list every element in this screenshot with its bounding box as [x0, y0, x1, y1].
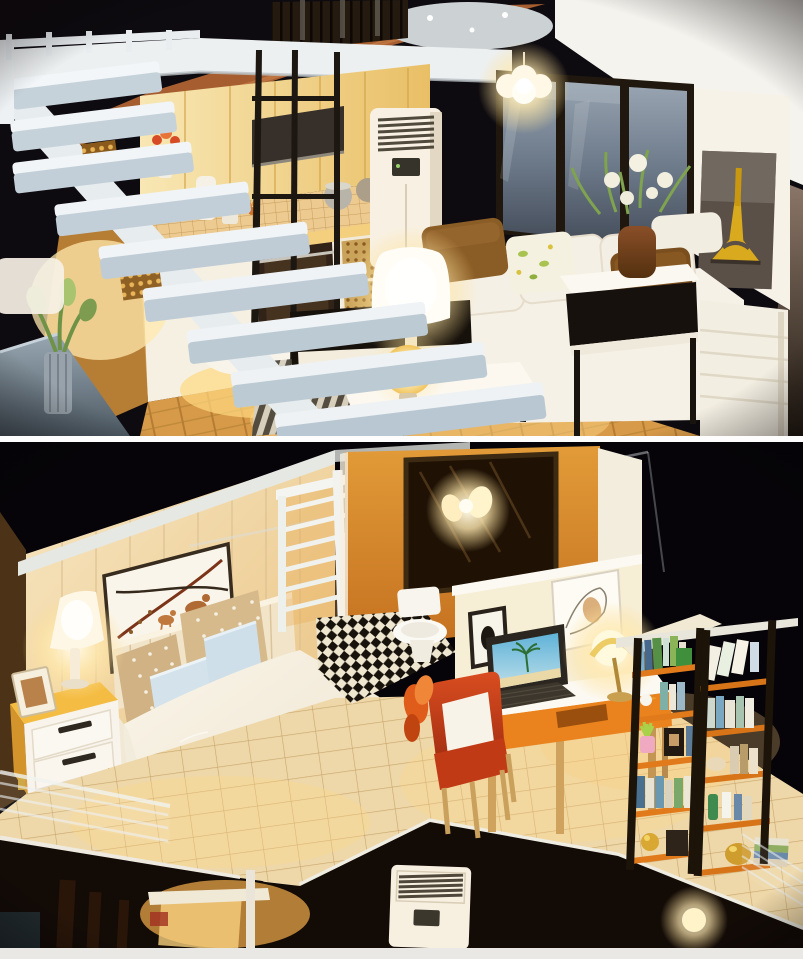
photo-living-room — [0, 0, 803, 436]
bottom-photo-border — [0, 948, 803, 959]
vignette — [0, 442, 803, 948]
vignette — [0, 0, 803, 436]
photo-bedroom — [0, 442, 803, 948]
dollhouse-photo-collage — [0, 0, 803, 959]
